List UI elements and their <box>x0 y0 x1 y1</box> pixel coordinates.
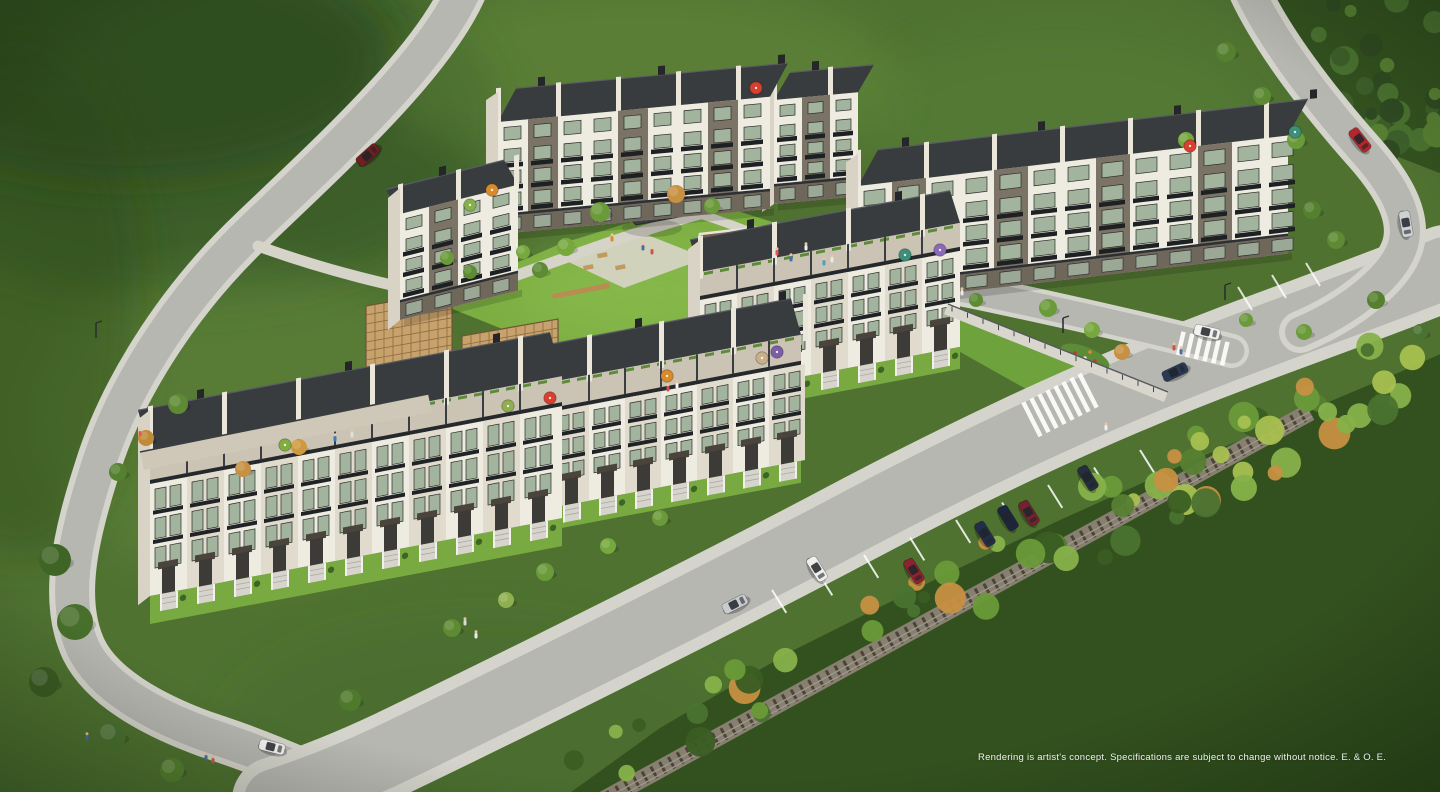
disclaimer-text: Rendering is artist's concept. Specifica… <box>978 752 1318 763</box>
site-plan-svg <box>0 0 1440 792</box>
rendering-canvas: Rendering is artist's concept. Specifica… <box>0 0 1440 792</box>
photo-vignette <box>0 0 1440 792</box>
